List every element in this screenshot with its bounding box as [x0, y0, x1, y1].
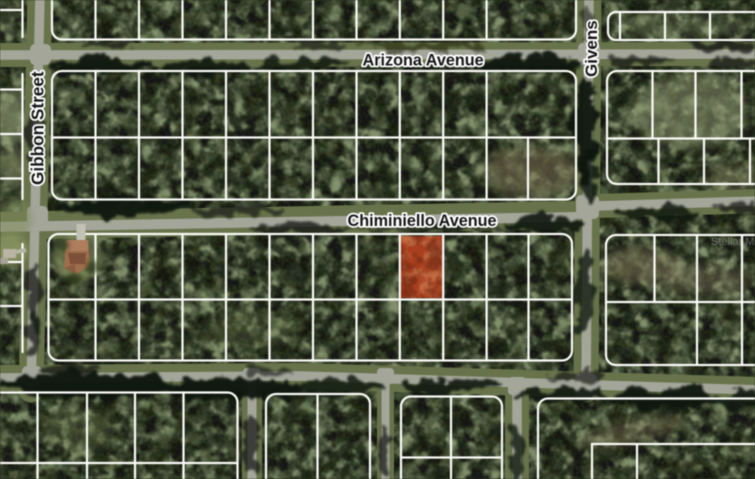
svg-text:Givens: Givens [582, 20, 601, 77]
svg-text:Stellar MLS: Stellar MLS [711, 236, 755, 248]
svg-text:Gibbon Street: Gibbon Street [28, 71, 48, 185]
svg-text:Arizona Avenue: Arizona Avenue [363, 51, 484, 69]
svg-text:Chiminiello Avenue: Chiminiello Avenue [348, 212, 497, 230]
